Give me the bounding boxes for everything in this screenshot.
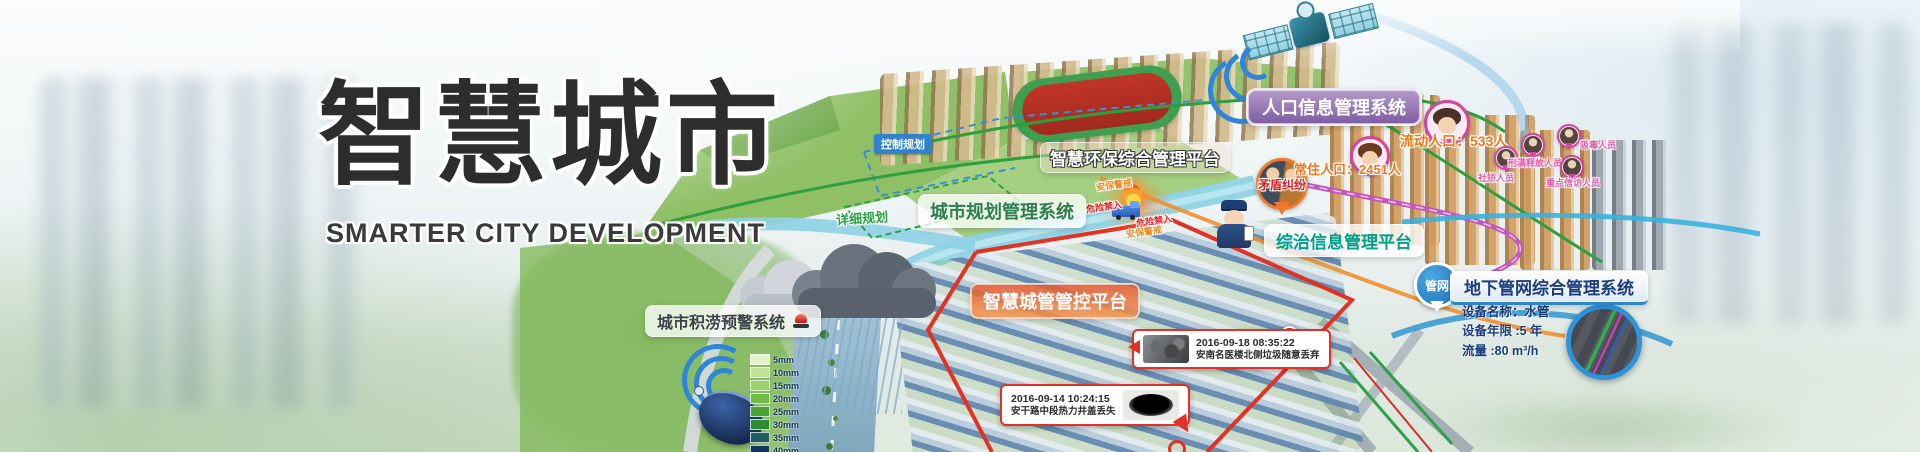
banner-title: 智慧城市 xyxy=(318,70,782,202)
label-environment-platform[interactable]: 智慧环保综合管理平台 xyxy=(1040,142,1230,173)
legend-row: 40mm xyxy=(750,445,799,452)
legend-label: 40mm xyxy=(773,446,799,452)
legend-swatch xyxy=(750,354,770,365)
incident-time: 2016-09-18 08:35:22 xyxy=(1196,336,1320,350)
police-officer-icon xyxy=(1214,200,1254,254)
siren-icon xyxy=(793,314,809,328)
population-group-pin xyxy=(1521,133,1545,157)
pipeline-pin-text: 管网 xyxy=(1425,277,1449,294)
pipeline-flow: 流量 :80 m³/h xyxy=(1462,340,1538,359)
floating-population-text: 流动人口：533人 xyxy=(1400,131,1507,151)
legend-swatch xyxy=(750,406,770,417)
banner-subtitle: SMARTER CITY DEVELOPMENT xyxy=(326,218,765,249)
label-pipeline-system[interactable]: 地下管网综合管理系统 xyxy=(1450,271,1648,305)
population-group-label: 刑满释放人员 xyxy=(1508,156,1562,169)
incident-callout-garbage: 2016-09-18 08:35:22 安南名医楼北侧垃圾随意丢弃 xyxy=(1132,329,1331,369)
resident-population-text: 常住人口：2451人 xyxy=(1294,159,1401,178)
pipeline-device-age: 设备年限 :5 年 xyxy=(1462,320,1543,339)
dispute-label: 矛盾纠纷 xyxy=(1258,176,1306,193)
incident-desc: 安干路中段热力井盖丢失 xyxy=(1011,406,1116,419)
incident-text: 2016-09-18 08:35:22 安南名医楼北侧垃圾随意丢弃 xyxy=(1196,336,1320,363)
incident-time: 2016-09-14 10:24:15 xyxy=(1011,392,1116,406)
legend-swatch xyxy=(750,445,770,452)
label-governance-platform[interactable]: 综治信息管理平台 xyxy=(1264,224,1424,257)
legend-swatch xyxy=(750,380,770,391)
detail-planning-tag: 详细规划 xyxy=(835,206,888,229)
label-city-management-platform[interactable]: 智慧城管管控平台 xyxy=(970,283,1140,319)
population-group-label: 社矫人员 xyxy=(1478,171,1514,184)
population-group-pin xyxy=(1557,124,1581,148)
manhole-photo xyxy=(1123,390,1179,420)
legend-row: 20mm xyxy=(750,393,799,404)
incident-text: 2016-09-14 10:24:15 安干路中段热力井盖丢失 xyxy=(1011,392,1116,419)
legend-row: 15mm xyxy=(750,380,799,391)
legend-swatch xyxy=(750,367,770,378)
incident-desc: 安南名医楼北侧垃圾随意丢弃 xyxy=(1196,350,1320,363)
pipe-magnifier xyxy=(1566,304,1642,380)
legend-swatch xyxy=(750,432,770,443)
green-pipe xyxy=(1370,352,1452,444)
population-group-label: 吸毒人员 xyxy=(1580,138,1616,151)
legend-label: 35mm xyxy=(773,433,799,443)
legend-label: 20mm xyxy=(773,394,799,404)
label-population-system[interactable]: 人口信息管理系统 xyxy=(1246,88,1422,126)
legend-row: 35mm xyxy=(750,432,799,443)
label-urban-planning-system[interactable]: 城市规划管理系统 xyxy=(918,194,1086,228)
legend-label: 15mm xyxy=(773,381,799,391)
legend-label: 25mm xyxy=(773,407,799,417)
garbage-photo xyxy=(1143,335,1189,363)
red-pipe xyxy=(1354,358,1432,452)
rainfall-legend: 5mm 10mm 15mm 20mm 25mm 30mm 35mm 40mm xyxy=(750,354,799,452)
legend-swatch xyxy=(750,393,770,404)
legend-label: 5mm xyxy=(773,355,794,365)
control-planning-tag: 控制规划 xyxy=(874,134,932,154)
legend-swatch xyxy=(750,419,770,430)
flood-warning-label-text: 城市积涝预警系统 xyxy=(657,309,785,333)
cyan-route xyxy=(1402,215,1760,234)
legend-row: 10mm xyxy=(750,367,799,378)
population-group-label: 重点信访人员 xyxy=(1546,176,1600,189)
label-flood-warning-system[interactable]: 城市积涝预警系统 xyxy=(645,305,821,337)
legend-label: 10mm xyxy=(773,368,799,378)
incident-marker xyxy=(1168,440,1186,452)
legend-label: 30mm xyxy=(773,420,799,430)
smart-city-banner: 5mm 10mm 15mm 20mm 25mm 30mm 35mm 40mm 安… xyxy=(0,0,1920,452)
legend-row: 5mm xyxy=(750,354,799,365)
incident-callout-manhole: 2016-09-14 10:24:15 安干路中段热力井盖丢失 xyxy=(1000,384,1190,426)
legend-row: 30mm xyxy=(750,419,799,430)
green-pipe xyxy=(1340,362,1418,452)
legend-row: 25mm xyxy=(750,406,799,417)
